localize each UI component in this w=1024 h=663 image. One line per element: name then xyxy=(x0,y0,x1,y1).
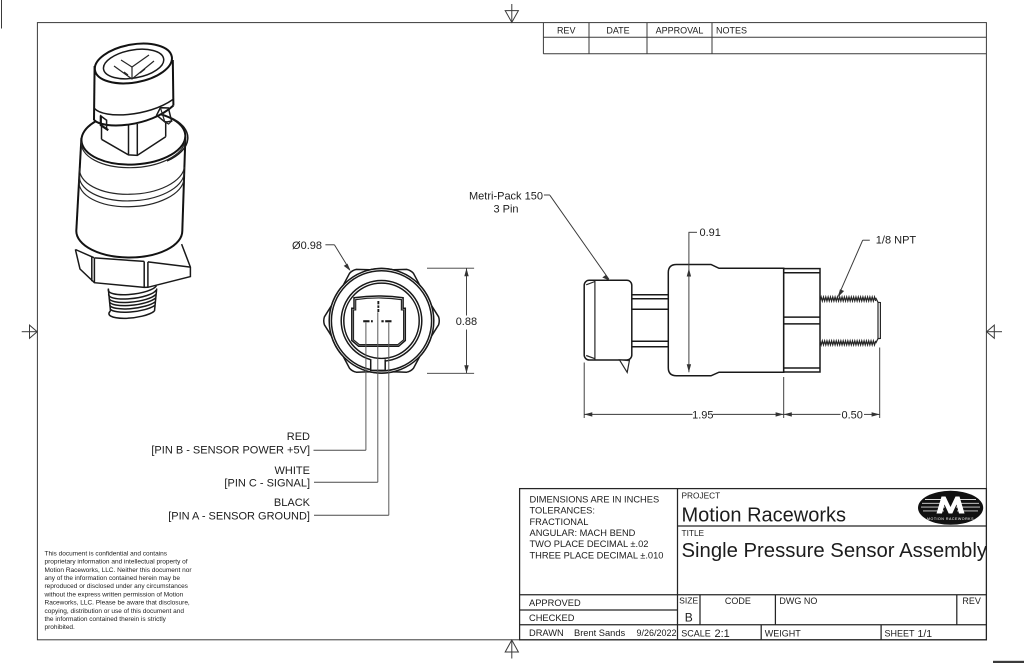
svg-text:proprietary information and in: proprietary information and intellectual… xyxy=(45,559,188,566)
svg-text:[PIN B - SENSOR POWER +5V]: [PIN B - SENSOR POWER +5V] xyxy=(151,445,310,457)
svg-text:Motion Raceworks: Motion Raceworks xyxy=(682,505,847,527)
svg-text:APPROVAL: APPROVAL xyxy=(656,25,704,35)
svg-text:CHECKED: CHECKED xyxy=(529,613,575,623)
svg-text:DRAWN: DRAWN xyxy=(529,628,564,638)
svg-text:FRACTIONAL: FRACTIONAL xyxy=(530,517,589,527)
svg-text:Motion Raceworks, LLC. Neither: Motion Raceworks, LLC. Neither this docu… xyxy=(45,567,193,574)
svg-text:[PIN C - SIGNAL]: [PIN C - SIGNAL] xyxy=(224,478,310,490)
svg-text:1/1: 1/1 xyxy=(918,628,933,640)
svg-text:B: B xyxy=(685,611,693,625)
svg-text:ANGULAR: MACH BEND: ANGULAR: MACH BEND xyxy=(530,528,636,538)
svg-text:any of the information contain: any of the information contained herein … xyxy=(45,575,181,582)
svg-text:REV: REV xyxy=(557,25,576,35)
svg-text:DWG NO: DWG NO xyxy=(779,596,817,606)
svg-text:Single Pressure Sensor Assembl: Single Pressure Sensor Assembly xyxy=(682,540,988,562)
svg-text:NOTES: NOTES xyxy=(716,25,747,35)
svg-text:the information contained ther: the information contained therein is str… xyxy=(45,616,167,623)
svg-text:copying, distribution or use o: copying, distribution or use of this doc… xyxy=(45,608,185,615)
svg-text:APPROVED: APPROVED xyxy=(529,598,581,608)
svg-text:without the express written pe: without the express written permission o… xyxy=(44,591,184,598)
svg-text:This document is confidential: This document is confidential and contai… xyxy=(45,550,168,557)
svg-text:prohibited.: prohibited. xyxy=(45,624,76,631)
svg-text:9/26/2022: 9/26/2022 xyxy=(637,628,677,638)
svg-text:SHEET: SHEET xyxy=(885,628,916,638)
svg-text:THREE PLACE DECIMAL ±.010: THREE PLACE DECIMAL ±.010 xyxy=(530,550,664,560)
svg-text:TOLERANCES:: TOLERANCES: xyxy=(530,506,595,516)
svg-text:SIZE: SIZE xyxy=(679,596,698,606)
svg-text:[PIN A - SENSOR GROUND]: [PIN A - SENSOR GROUND] xyxy=(168,511,310,523)
svg-text:0.88: 0.88 xyxy=(456,316,477,328)
svg-text:WEIGHT: WEIGHT xyxy=(765,628,801,638)
svg-text:PROJECT: PROJECT xyxy=(682,490,721,500)
svg-text:2:1: 2:1 xyxy=(715,628,730,640)
svg-text:DIMENSIONS ARE IN INCHES: DIMENSIONS ARE IN INCHES xyxy=(530,494,660,504)
svg-text:BLACK: BLACK xyxy=(274,497,311,509)
svg-text:3 Pin: 3 Pin xyxy=(493,204,518,216)
svg-text:0.50: 0.50 xyxy=(841,409,862,421)
svg-text:Raceworks, LLC. Please be awar: Raceworks, LLC. Please be aware that dis… xyxy=(45,600,190,607)
svg-text:Ø0.98: Ø0.98 xyxy=(292,240,322,252)
svg-text:TWO PLACE DECIMAL ±.02: TWO PLACE DECIMAL ±.02 xyxy=(530,539,649,549)
svg-text:REV: REV xyxy=(962,596,981,606)
svg-text:SCALE: SCALE xyxy=(681,628,711,638)
svg-text:Brent Sands: Brent Sands xyxy=(574,628,626,638)
svg-text:DATE: DATE xyxy=(606,25,629,35)
svg-text:WHITE: WHITE xyxy=(275,465,310,477)
svg-text:Metri-Pack 150: Metri-Pack 150 xyxy=(469,190,543,202)
svg-text:CODE: CODE xyxy=(725,596,751,606)
svg-text:MOTION RACEWORKS: MOTION RACEWORKS xyxy=(927,517,974,521)
svg-text:RED: RED xyxy=(287,431,310,443)
svg-text:TITLE: TITLE xyxy=(682,528,705,538)
svg-text:1.95: 1.95 xyxy=(692,409,713,421)
svg-text:1/8 NPT: 1/8 NPT xyxy=(876,234,917,246)
svg-text:0.91: 0.91 xyxy=(700,227,721,239)
svg-text:reproduced or disclosed under: reproduced or disclosed under any circum… xyxy=(45,583,189,590)
